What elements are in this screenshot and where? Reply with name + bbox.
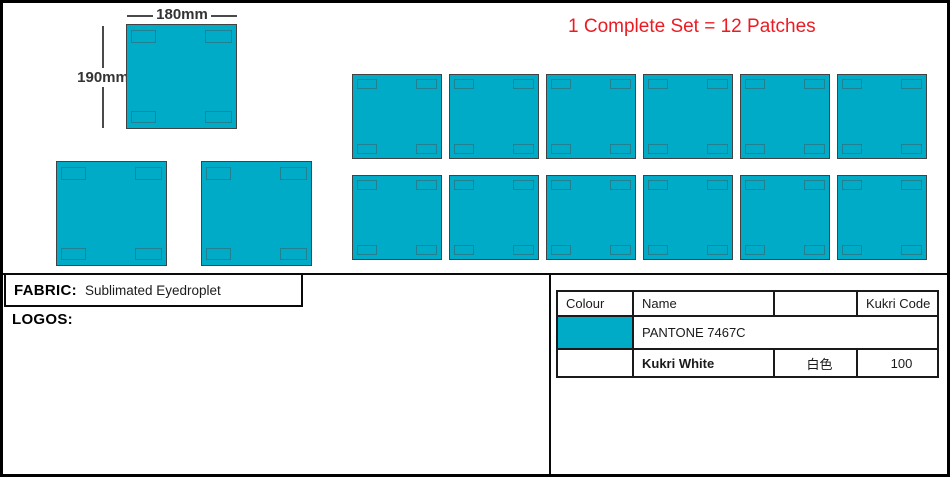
corner-mark bbox=[648, 144, 668, 154]
colour-table-header-row: Colour Name Kukri Code bbox=[557, 291, 938, 316]
patch-grid bbox=[352, 74, 927, 260]
corner-mark bbox=[804, 180, 825, 190]
patch bbox=[837, 175, 927, 260]
patch bbox=[740, 175, 830, 260]
corner-mark bbox=[131, 111, 156, 123]
corner-mark bbox=[745, 79, 765, 89]
corner-mark bbox=[416, 180, 437, 190]
corner-mark bbox=[610, 245, 631, 255]
table-row: Kukri White 白色 100 bbox=[557, 349, 938, 377]
spec-sheet: 180mm 190mm 1 Complete Set = 12 Patches … bbox=[0, 0, 950, 477]
corner-mark bbox=[357, 79, 377, 89]
header-blank bbox=[774, 291, 857, 316]
corner-mark bbox=[357, 245, 377, 255]
patch bbox=[546, 74, 636, 159]
corner-mark bbox=[551, 245, 571, 255]
patch bbox=[449, 74, 539, 159]
logos-label: LOGOS: bbox=[12, 311, 73, 328]
corner-mark bbox=[416, 79, 437, 89]
table-row: PANTONE 7467C bbox=[557, 316, 938, 349]
corner-mark bbox=[648, 245, 668, 255]
corner-mark bbox=[206, 248, 231, 260]
corner-mark bbox=[648, 79, 668, 89]
corner-mark bbox=[205, 111, 231, 123]
vertical-divider bbox=[549, 273, 551, 474]
corner-mark bbox=[551, 180, 571, 190]
colour-swatch bbox=[557, 316, 633, 349]
patch bbox=[352, 74, 442, 159]
set-count-note: 1 Complete Set = 12 Patches bbox=[568, 16, 816, 38]
patch-sample-right bbox=[201, 161, 312, 266]
corner-mark bbox=[610, 144, 631, 154]
patch bbox=[643, 175, 733, 260]
fabric-value: Sublimated Eyedroplet bbox=[85, 283, 221, 298]
corner-mark bbox=[454, 245, 474, 255]
corner-mark bbox=[454, 180, 474, 190]
header-colour: Colour bbox=[557, 291, 633, 316]
corner-mark bbox=[357, 180, 377, 190]
corner-mark bbox=[135, 167, 161, 179]
corner-mark bbox=[513, 245, 534, 255]
corner-mark bbox=[610, 79, 631, 89]
corner-mark bbox=[551, 79, 571, 89]
corner-mark bbox=[357, 144, 377, 154]
pantone-name: PANTONE 7467C bbox=[633, 316, 938, 349]
corner-mark bbox=[454, 79, 474, 89]
corner-mark bbox=[842, 79, 862, 89]
patch-sample-left bbox=[56, 161, 167, 266]
corner-mark bbox=[206, 167, 231, 179]
corner-mark bbox=[804, 144, 825, 154]
patch bbox=[352, 175, 442, 260]
corner-mark bbox=[842, 144, 862, 154]
corner-mark bbox=[610, 180, 631, 190]
corner-mark bbox=[901, 245, 922, 255]
corner-mark bbox=[707, 79, 728, 89]
corner-mark bbox=[745, 180, 765, 190]
patch bbox=[837, 74, 927, 159]
corner-mark bbox=[745, 144, 765, 154]
kukri-code-value: 100 bbox=[857, 349, 938, 377]
corner-mark bbox=[901, 79, 922, 89]
corner-mark bbox=[842, 245, 862, 255]
corner-mark bbox=[131, 30, 156, 42]
kukri-white-cjk-name: 白色 bbox=[774, 349, 857, 377]
corner-mark bbox=[901, 144, 922, 154]
kukri-white-name: Kukri White bbox=[633, 349, 774, 377]
corner-mark bbox=[416, 245, 437, 255]
corner-mark bbox=[513, 144, 534, 154]
header-kukri-code: Kukri Code bbox=[857, 291, 938, 316]
corner-mark bbox=[901, 180, 922, 190]
corner-mark bbox=[707, 144, 728, 154]
corner-mark bbox=[804, 79, 825, 89]
colour-swatch-white bbox=[557, 349, 633, 377]
patch bbox=[643, 74, 733, 159]
patch bbox=[740, 74, 830, 159]
corner-mark bbox=[707, 180, 728, 190]
height-dimension-label: 190mm bbox=[73, 69, 133, 86]
width-dimension-label: 180mm bbox=[127, 6, 237, 23]
corner-mark bbox=[804, 245, 825, 255]
corner-mark bbox=[648, 180, 668, 190]
fabric-box: FABRIC: Sublimated Eyedroplet bbox=[4, 273, 303, 307]
corner-mark bbox=[205, 30, 231, 42]
corner-mark bbox=[61, 167, 86, 179]
patch bbox=[546, 175, 636, 260]
corner-mark bbox=[280, 167, 306, 179]
corner-mark bbox=[745, 245, 765, 255]
corner-mark bbox=[61, 248, 86, 260]
colour-table: Colour Name Kukri Code PANTONE 7467C Kuk… bbox=[556, 290, 939, 378]
corner-mark bbox=[280, 248, 306, 260]
corner-mark bbox=[551, 144, 571, 154]
fabric-label: FABRIC: bbox=[14, 282, 77, 299]
corner-mark bbox=[513, 180, 534, 190]
corner-mark bbox=[842, 180, 862, 190]
corner-mark bbox=[135, 248, 161, 260]
corner-mark bbox=[707, 245, 728, 255]
patch-large-sample bbox=[126, 24, 237, 129]
header-name: Name bbox=[633, 291, 774, 316]
corner-mark bbox=[513, 79, 534, 89]
corner-mark bbox=[454, 144, 474, 154]
corner-mark bbox=[416, 144, 437, 154]
patch bbox=[449, 175, 539, 260]
